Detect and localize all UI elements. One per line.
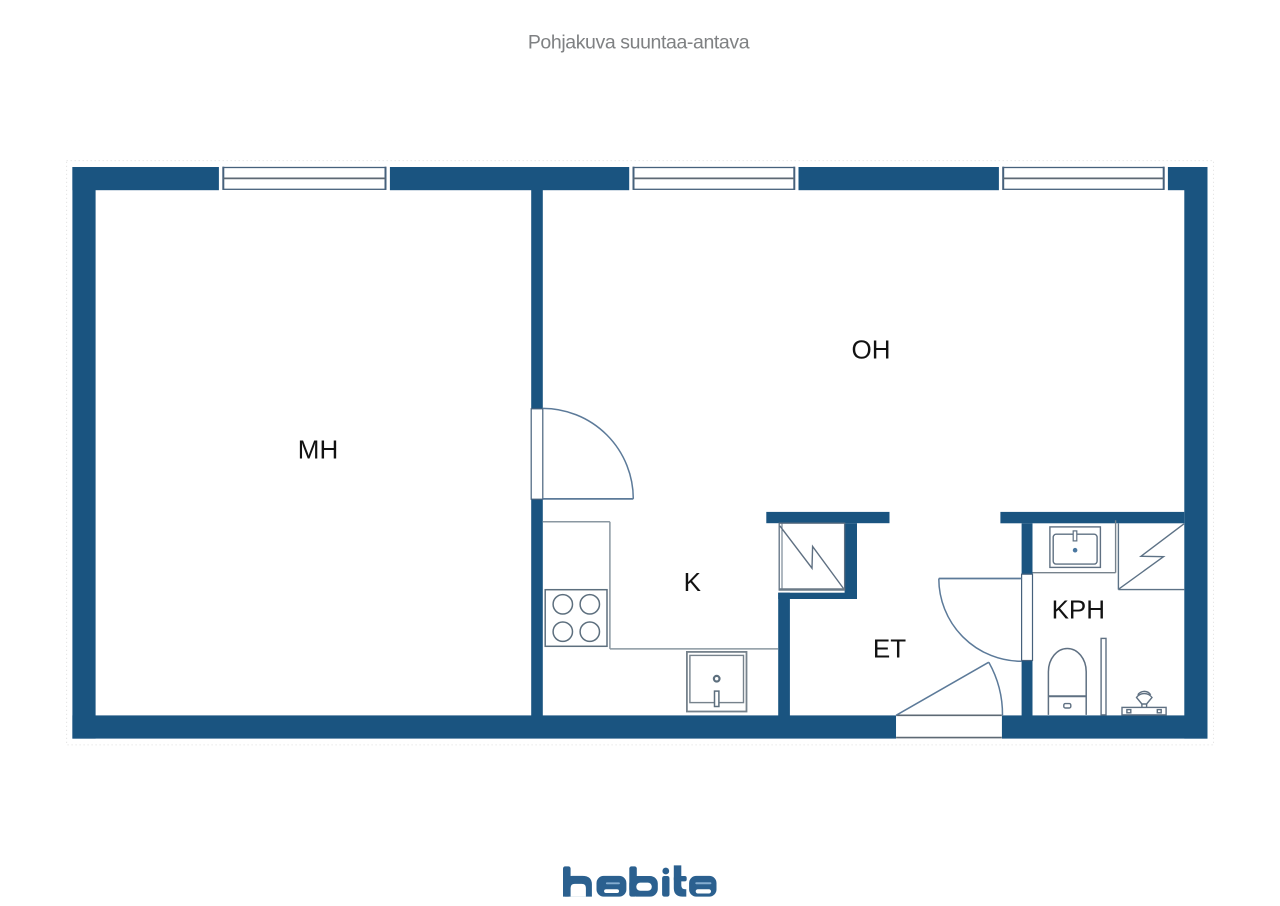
svg-text:OH: OH bbox=[852, 334, 891, 364]
svg-text:ET: ET bbox=[873, 633, 906, 663]
svg-text:MH: MH bbox=[298, 435, 338, 465]
svg-text:Pohjakuva suuntaa-antava: Pohjakuva suuntaa-antava bbox=[528, 32, 750, 54]
svg-text:K: K bbox=[684, 567, 702, 597]
svg-text:KPH: KPH bbox=[1052, 594, 1105, 624]
